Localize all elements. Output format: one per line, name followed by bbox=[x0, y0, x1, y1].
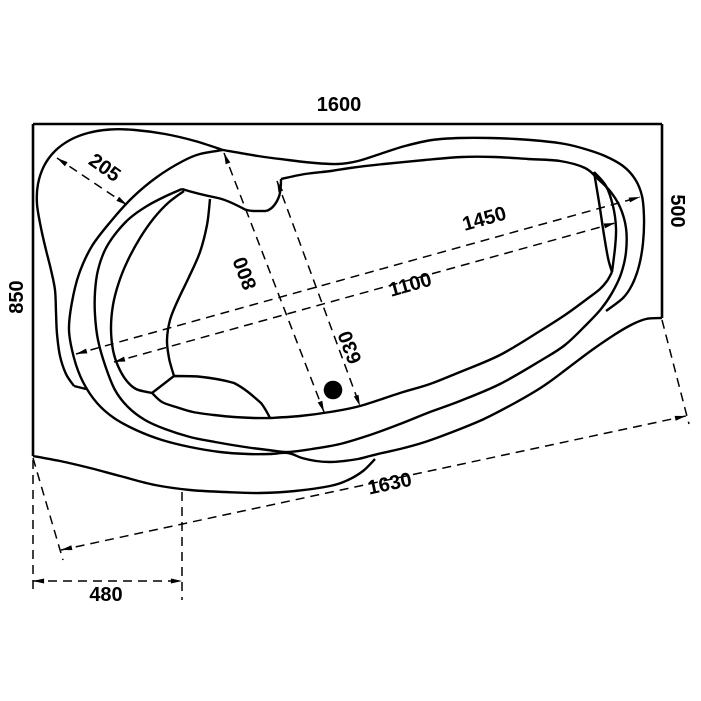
svg-text:480: 480 bbox=[89, 584, 122, 606]
svg-text:205: 205 bbox=[84, 150, 124, 187]
svg-text:800: 800 bbox=[229, 254, 261, 293]
svg-text:1630: 1630 bbox=[366, 469, 414, 500]
svg-text:500: 500 bbox=[666, 194, 688, 227]
svg-text:1600: 1600 bbox=[317, 94, 362, 116]
svg-text:630: 630 bbox=[334, 328, 366, 367]
svg-text:1450: 1450 bbox=[460, 203, 509, 236]
svg-text:1100: 1100 bbox=[387, 269, 435, 302]
svg-text:850: 850 bbox=[6, 280, 28, 313]
